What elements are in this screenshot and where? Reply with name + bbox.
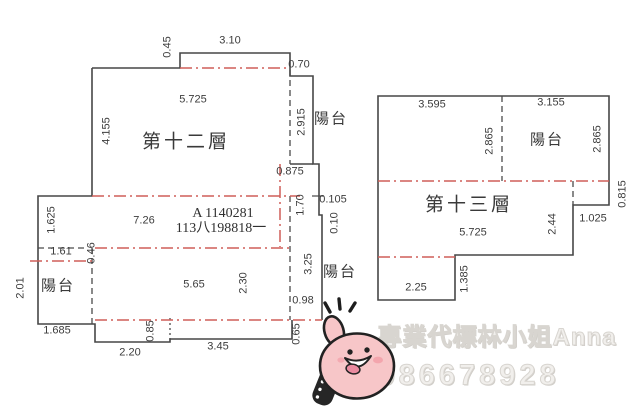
emphasis-marks-icon [325,299,355,312]
thumbs-up-sticker [0,0,640,407]
floor-plan-page: 0.453.100.705.725第十二層4.1552.915陽台0.8751.… [0,0,640,407]
